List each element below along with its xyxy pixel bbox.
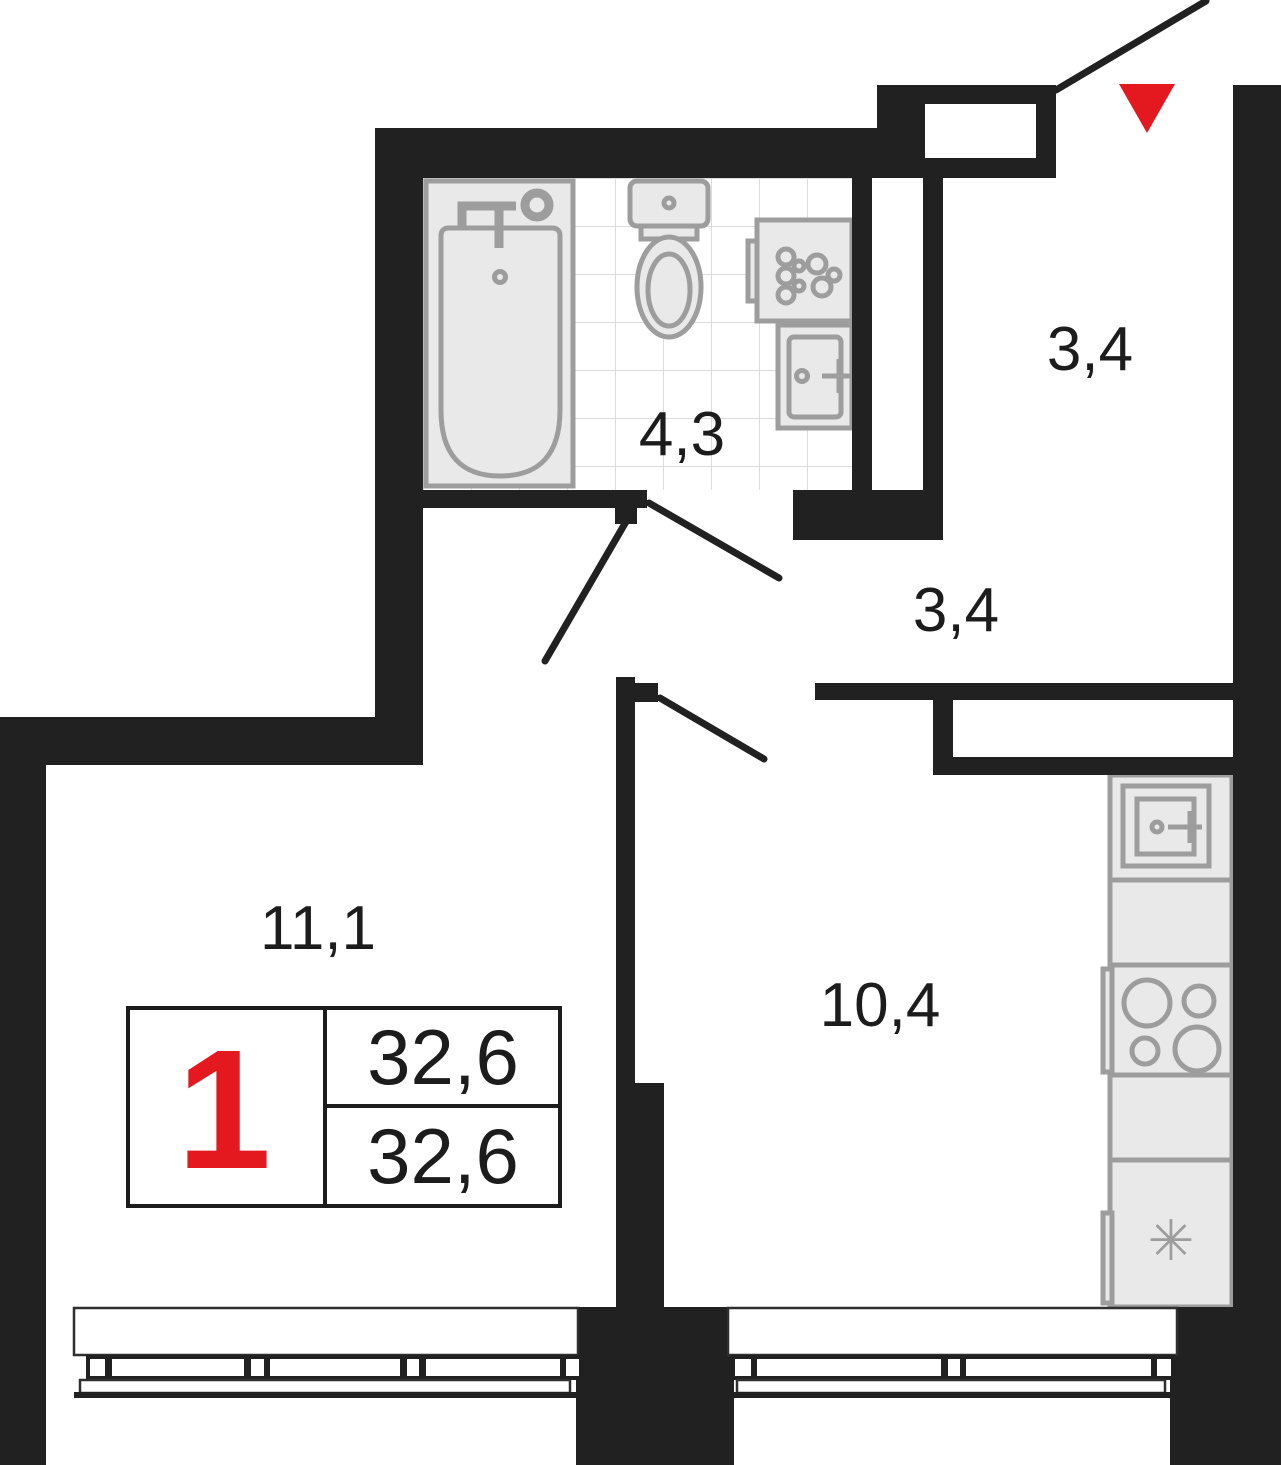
window-pane	[424, 1357, 562, 1378]
window-inner-sill	[80, 1380, 570, 1393]
wall-hall-kitchen-lower	[953, 757, 1233, 775]
wall-living-top	[0, 717, 422, 765]
wall-kitchen-door-pivot	[635, 683, 658, 702]
window-pane	[110, 1357, 246, 1378]
room-label-hallway: 3,4	[913, 576, 999, 645]
window-sill	[74, 1308, 578, 1355]
fridge-lip	[1103, 1213, 1112, 1303]
window-sill	[728, 1308, 1177, 1355]
wall-outer-left	[0, 717, 46, 1465]
window-pane	[268, 1357, 402, 1378]
window-inner-sill	[737, 1380, 1165, 1393]
kitchen-door-swing-line	[660, 698, 764, 759]
bathroom-door-swing-line-right	[649, 503, 779, 578]
wall-duct-stub	[933, 700, 953, 775]
wall-shaft-right	[923, 178, 943, 490]
wall-shaft-left	[852, 178, 872, 490]
window-mullion	[946, 1357, 962, 1378]
window-mullion	[88, 1357, 107, 1378]
room-label-living-room: 11,1	[260, 894, 376, 963]
legend-area-top: 32,6	[367, 1013, 519, 1101]
window-mullion	[1155, 1357, 1173, 1378]
facade-line	[728, 1392, 1177, 1398]
kitchen-sink-icon	[1123, 786, 1209, 866]
floor-plan: ✳	[0, 0, 1281, 1465]
washing-machine-icon	[748, 220, 852, 321]
washing-machine-lip	[748, 241, 757, 301]
bathroom-sink-icon	[778, 325, 852, 428]
window-mullion	[564, 1357, 581, 1378]
window-mullion	[405, 1357, 421, 1378]
wall-outer-right	[1233, 85, 1281, 1465]
wall-rooms-divider	[616, 677, 635, 1083]
wall-bathroom-bottom-left	[423, 490, 647, 508]
wall-bathroom-left	[375, 128, 423, 765]
room-label-entry-hall: 3,4	[1047, 315, 1133, 384]
entrance-doorway-opening	[925, 104, 1036, 158]
stove-lip	[1103, 969, 1112, 1072]
window-pane	[755, 1357, 943, 1378]
wall-pier-right	[1170, 1307, 1281, 1465]
entrance-marker-icon	[1119, 84, 1175, 133]
right-window	[728, 1308, 1177, 1398]
legend-area-bottom: 32,6	[367, 1112, 519, 1200]
entrance-door-swing-line	[1056, 1, 1206, 90]
toilet-tank	[630, 181, 708, 226]
wall-rooms-divider-lower	[616, 1083, 664, 1307]
fridge-symbol: ✳	[1148, 1209, 1195, 1272]
bathroom-door-swing-line-left	[545, 520, 627, 661]
window-mullion	[733, 1357, 753, 1378]
wall-pier-center	[576, 1307, 734, 1465]
legend: 1 32,6 32,6	[128, 1008, 560, 1206]
wall-bathroom-bottom-right	[793, 490, 943, 540]
room-label-bathroom: 4,3	[639, 400, 725, 469]
window-pane	[964, 1357, 1153, 1378]
wall-hall-kitchen-upper	[815, 683, 1233, 700]
legend-rooms-count: 1	[177, 1015, 272, 1205]
facade-line	[74, 1392, 578, 1398]
wall-bathroom-top	[375, 128, 877, 178]
toilet-icon	[630, 181, 708, 337]
floor-plan-page: ✳	[0, 0, 1281, 1465]
bathtub-icon	[426, 181, 573, 486]
room-label-kitchen: 10,4	[820, 971, 941, 1040]
window-mullion	[249, 1357, 266, 1378]
left-window	[74, 1308, 581, 1398]
fridge-icon: ✳	[1103, 1160, 1232, 1307]
